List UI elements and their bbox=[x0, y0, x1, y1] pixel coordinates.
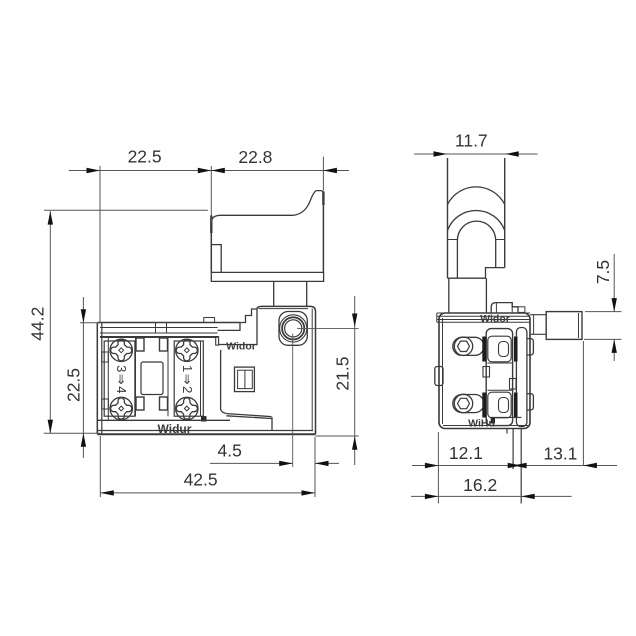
svg-text:3⇒4: 3⇒4 bbox=[114, 365, 129, 395]
svg-text:WiHu: WiHu bbox=[468, 417, 495, 429]
svg-text:16.2: 16.2 bbox=[463, 475, 497, 495]
svg-text:12.1: 12.1 bbox=[449, 443, 483, 463]
svg-text:22.5: 22.5 bbox=[64, 368, 84, 402]
svg-text:1⇒2: 1⇒2 bbox=[180, 365, 195, 395]
svg-text:21.5: 21.5 bbox=[333, 357, 353, 391]
svg-text:7.5: 7.5 bbox=[593, 260, 613, 284]
svg-text:Widur: Widur bbox=[158, 422, 192, 436]
svg-text:22.5: 22.5 bbox=[128, 147, 162, 167]
svg-text:42.5: 42.5 bbox=[184, 469, 218, 489]
svg-text:4.5: 4.5 bbox=[218, 441, 242, 461]
svg-text:Widor: Widor bbox=[226, 341, 256, 353]
svg-text:22.8: 22.8 bbox=[238, 147, 272, 167]
svg-text:13.1: 13.1 bbox=[543, 444, 577, 464]
svg-text:44.2: 44.2 bbox=[28, 307, 48, 341]
svg-text:11.7: 11.7 bbox=[455, 131, 488, 151]
svg-text:Widor: Widor bbox=[480, 313, 510, 325]
